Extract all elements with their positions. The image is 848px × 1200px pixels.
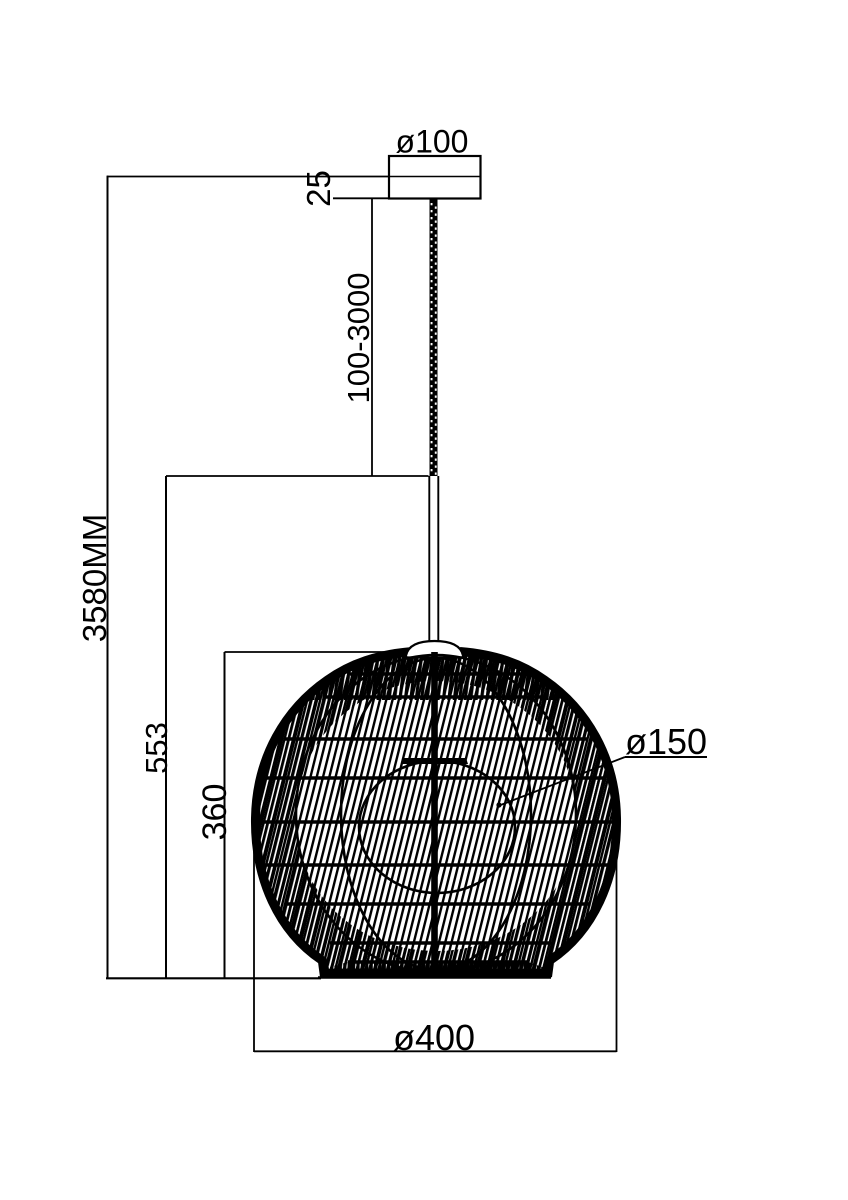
svg-text:ø400: ø400 [393, 1017, 475, 1058]
svg-text:3580MM: 3580MM [76, 514, 113, 642]
svg-text:ø100: ø100 [396, 124, 469, 160]
svg-text:553: 553 [139, 722, 174, 774]
svg-text:ø150: ø150 [625, 721, 707, 762]
svg-text:25: 25 [300, 170, 337, 207]
svg-text:360: 360 [196, 784, 234, 841]
svg-text:100-3000: 100-3000 [341, 272, 376, 403]
